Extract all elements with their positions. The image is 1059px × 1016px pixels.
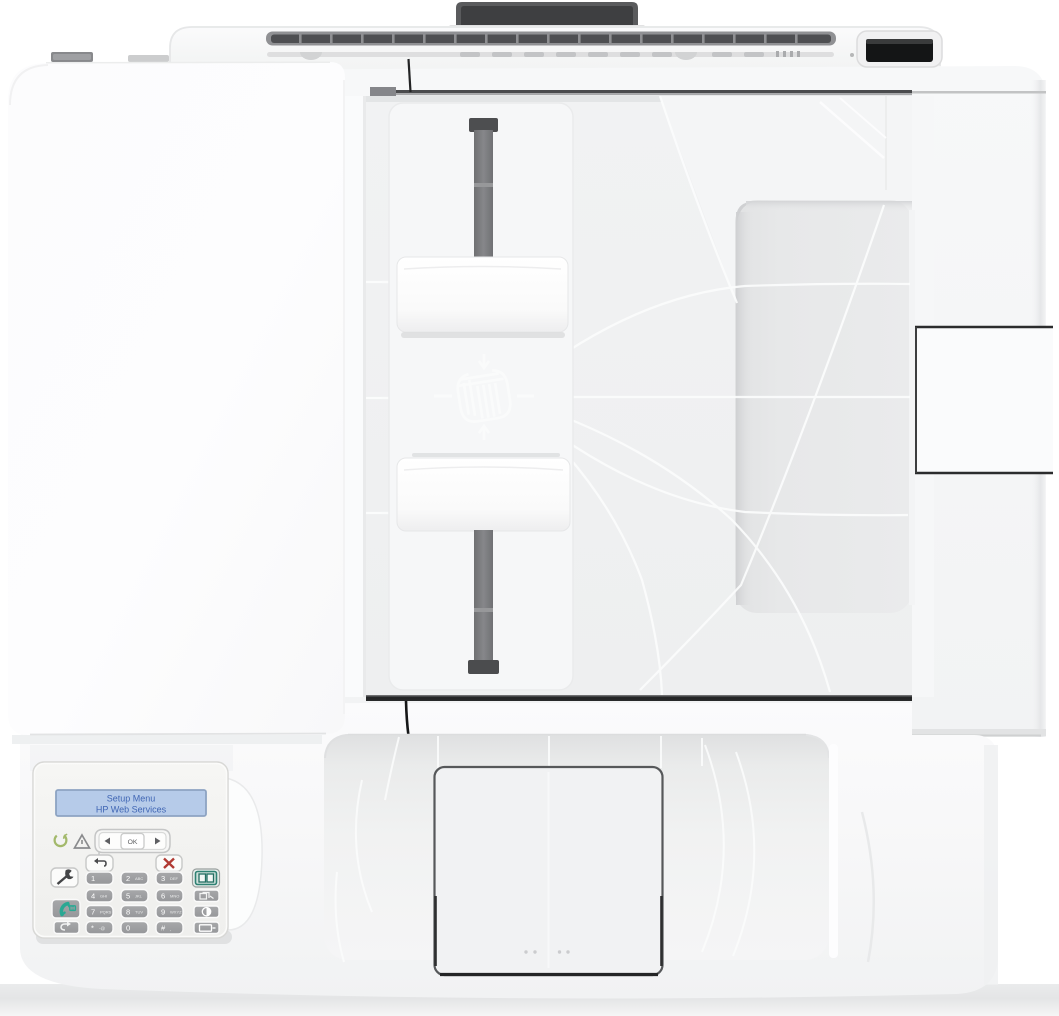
svg-text:1: 1	[91, 874, 95, 883]
svg-text:MNO: MNO	[170, 894, 179, 899]
svg-text:9: 9	[161, 908, 165, 917]
svg-text:GHI: GHI	[100, 894, 107, 899]
svg-text:5: 5	[126, 892, 130, 901]
svg-text:*: *	[91, 924, 94, 933]
svg-text:JKL: JKL	[135, 894, 143, 899]
svg-text:-@: -@	[99, 926, 105, 931]
svg-text:3: 3	[161, 874, 165, 883]
svg-text:TUV: TUV	[135, 910, 143, 915]
svg-text:PQRS: PQRS	[100, 910, 112, 915]
svg-text:2: 2	[126, 874, 130, 883]
svg-text:DEF: DEF	[170, 876, 179, 881]
svg-text:OK: OK	[128, 839, 138, 846]
svg-text:0: 0	[126, 924, 130, 933]
svg-text:Setup Menu: Setup Menu	[107, 794, 156, 804]
svg-text:7: 7	[91, 908, 95, 917]
svg-text:8: 8	[126, 908, 130, 917]
svg-text:6: 6	[161, 892, 165, 901]
svg-text:WXYZ: WXYZ	[170, 910, 182, 915]
svg-text:,: ,	[170, 927, 171, 932]
svg-text:ABC: ABC	[135, 876, 143, 881]
svg-text:4: 4	[91, 892, 95, 901]
svg-text:HP Web Services: HP Web Services	[96, 805, 167, 815]
